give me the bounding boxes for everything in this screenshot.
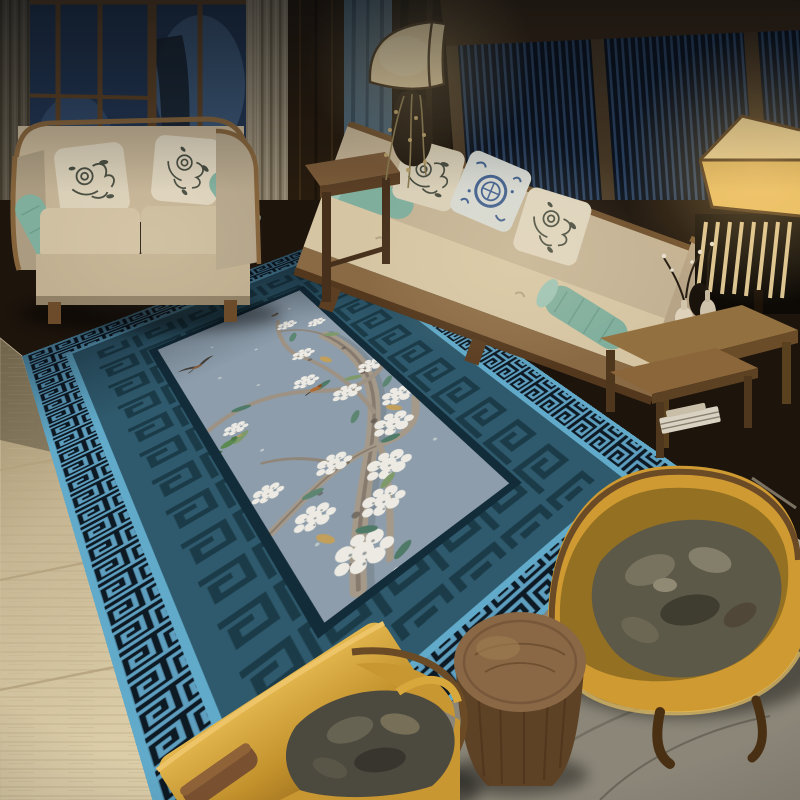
table-leg-5: [744, 376, 752, 428]
loveseat: [10, 119, 282, 332]
lamp-shade-glow: [379, 36, 431, 76]
table-leg-2: [782, 342, 791, 404]
long-sofa-leg-2: [464, 338, 486, 366]
gold-armchair-right: [545, 466, 800, 764]
side-table-leg-front: [322, 192, 331, 302]
floor-lamp-shade-top: [700, 116, 800, 160]
table-leg-3: [606, 350, 615, 412]
gold-armchair-bottom: [153, 616, 480, 800]
stool-top: [454, 612, 586, 712]
loveseat-cushion-1: [40, 208, 140, 260]
loveseat-leg-1: [48, 302, 61, 324]
living-room-photo: [0, 0, 800, 800]
loveseat-pillow-2: [150, 134, 222, 206]
loveseat-front-shadow: [36, 296, 250, 305]
furniture: [0, 0, 800, 800]
stool-top-sheen: [476, 636, 520, 660]
loveseat-leg-2: [224, 300, 237, 322]
armchair-leg-1: [657, 712, 670, 764]
loveseat-pillow-1: [53, 141, 131, 219]
